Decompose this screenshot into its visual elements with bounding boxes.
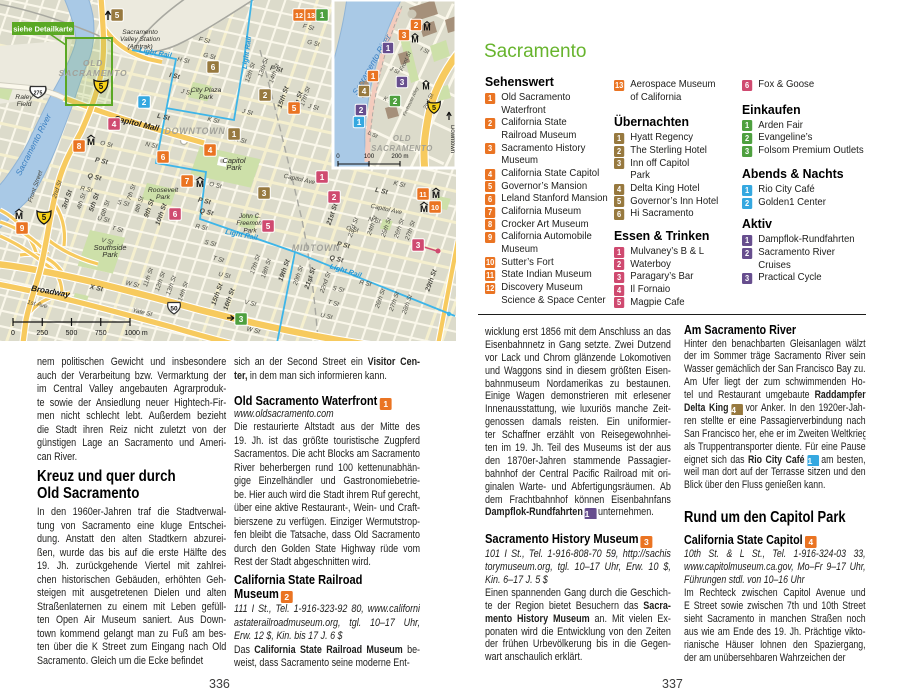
svg-text:9: 9: [20, 224, 25, 233]
svg-text:4: 4: [208, 146, 213, 155]
svg-text:250: 250: [36, 330, 48, 337]
svg-text:John C.: John C.: [238, 213, 261, 220]
svg-text:3: 3: [402, 31, 407, 40]
svg-text:M: M: [422, 82, 429, 92]
svg-text:5: 5: [432, 103, 436, 112]
svg-text:0: 0: [11, 330, 15, 337]
svg-text:2: 2: [414, 21, 419, 30]
svg-text:M: M: [15, 211, 23, 222]
svg-text:M: M: [420, 204, 428, 215]
svg-text:Park: Park: [226, 163, 242, 172]
svg-text:12: 12: [295, 11, 303, 20]
svg-text:SACRAMENTO: SACRAMENTO: [371, 144, 433, 153]
svg-text:M: M: [196, 179, 204, 190]
svg-text:1: 1: [320, 173, 325, 182]
svg-text:10: 10: [431, 203, 439, 212]
svg-text:Sacramento: Sacramento: [122, 29, 158, 36]
svg-text:8: 8: [77, 142, 82, 151]
svg-text:Park: Park: [199, 94, 214, 101]
svg-text:Field: Field: [17, 101, 32, 108]
svg-text:6: 6: [173, 210, 178, 219]
svg-text:4: 4: [362, 87, 367, 96]
svg-text:1: 1: [320, 11, 325, 20]
svg-text:0: 0: [336, 153, 340, 160]
svg-text:5: 5: [115, 11, 120, 20]
svg-text:3: 3: [400, 78, 405, 87]
svg-text:SACRAMENTO: SACRAMENTO: [59, 68, 128, 78]
svg-text:Valley Station: Valley Station: [120, 36, 160, 43]
svg-text:3: 3: [239, 315, 244, 324]
svg-text:275: 275: [34, 91, 43, 97]
svg-text:siehe Detailkarte: siehe Detailkarte: [13, 25, 73, 34]
svg-text:Park: Park: [102, 250, 118, 259]
svg-text:2: 2: [332, 193, 337, 202]
svg-text:200 m: 200 m: [391, 153, 408, 160]
svg-text:Roosevelt: Roosevelt: [148, 187, 179, 194]
svg-text:M: M: [87, 137, 95, 148]
svg-text:750: 750: [95, 330, 107, 337]
svg-text:City Plaza: City Plaza: [191, 87, 222, 94]
svg-text:1: 1: [357, 118, 362, 127]
svg-text:OLD: OLD: [393, 134, 411, 143]
svg-text:1: 1: [232, 130, 237, 139]
svg-text:M: M: [411, 35, 418, 45]
svg-text:5: 5: [42, 213, 47, 222]
svg-text:2: 2: [393, 97, 398, 106]
svg-text:4: 4: [112, 120, 117, 129]
svg-text:OLD: OLD: [83, 58, 103, 68]
svg-text:6: 6: [161, 153, 166, 162]
svg-text:MIDTOWN: MIDTOWN: [292, 243, 340, 253]
svg-text:Freemont: Freemont: [236, 220, 264, 227]
svg-text:M: M: [432, 190, 440, 201]
svg-text:7: 7: [185, 177, 190, 186]
svg-text:500: 500: [66, 330, 78, 337]
svg-text:50: 50: [170, 306, 178, 313]
svg-text:Park: Park: [156, 194, 171, 201]
svg-text:5: 5: [266, 222, 271, 231]
svg-text:3: 3: [416, 241, 421, 250]
svg-text:Park: Park: [243, 227, 257, 234]
svg-text:5: 5: [292, 104, 297, 113]
svg-text:3: 3: [262, 189, 267, 198]
svg-text:Raley: Raley: [15, 94, 33, 101]
svg-text:(Amtrak): (Amtrak): [127, 43, 152, 50]
svg-text:5: 5: [99, 82, 104, 91]
svg-text:1000 m: 1000 m: [124, 330, 148, 337]
svg-text:2: 2: [142, 98, 147, 107]
svg-text:M: M: [423, 23, 430, 33]
svg-text:11: 11: [419, 190, 427, 199]
svg-text:2: 2: [263, 91, 268, 100]
svg-text:1: 1: [371, 72, 376, 81]
svg-text:Downtown: Downtown: [449, 125, 455, 153]
svg-text:1: 1: [386, 44, 391, 53]
svg-text:6: 6: [211, 63, 216, 72]
svg-text:DOWNTOWN: DOWNTOWN: [165, 126, 226, 136]
svg-text:13: 13: [307, 11, 315, 20]
svg-text:2: 2: [359, 106, 364, 115]
svg-text:100: 100: [364, 153, 375, 160]
